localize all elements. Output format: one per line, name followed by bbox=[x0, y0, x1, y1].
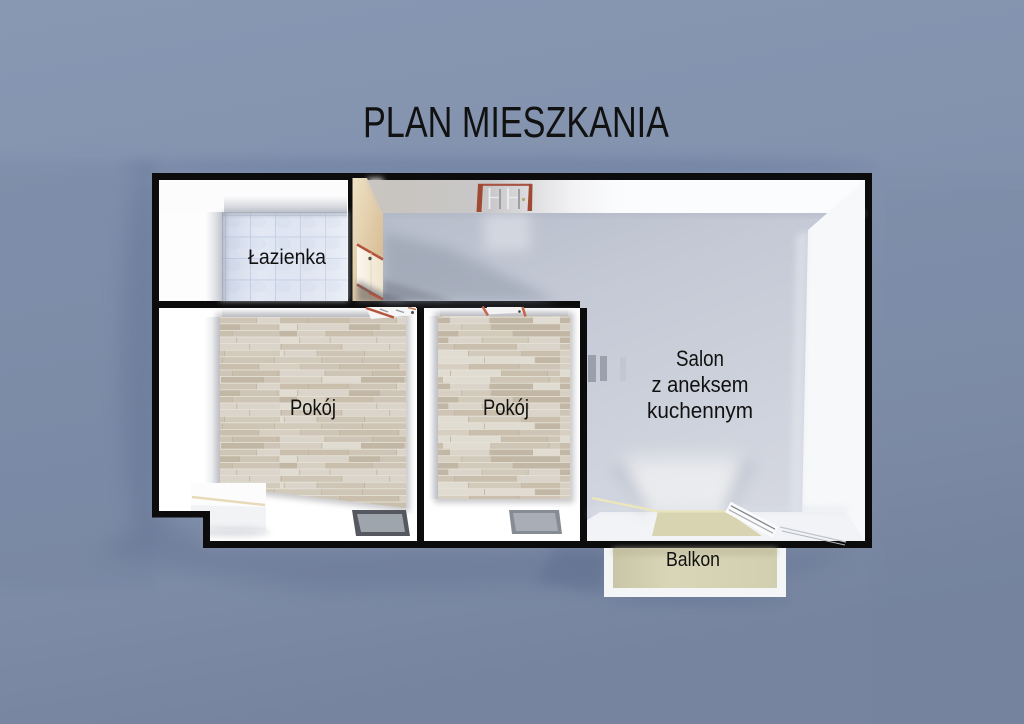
svg-text:Balkon: Balkon bbox=[666, 549, 720, 571]
svg-text:z aneksem: z aneksem bbox=[652, 372, 749, 397]
svg-text:Pokój: Pokój bbox=[483, 395, 529, 420]
svg-text:PLAN MIESZKANIA: PLAN MIESZKANIA bbox=[363, 98, 669, 147]
svg-text:Pokój: Pokój bbox=[290, 395, 336, 420]
svg-text:Łazienka: Łazienka bbox=[248, 246, 326, 269]
svg-text:Salon: Salon bbox=[676, 346, 724, 371]
svg-text:kuchennym: kuchennym bbox=[647, 398, 753, 423]
